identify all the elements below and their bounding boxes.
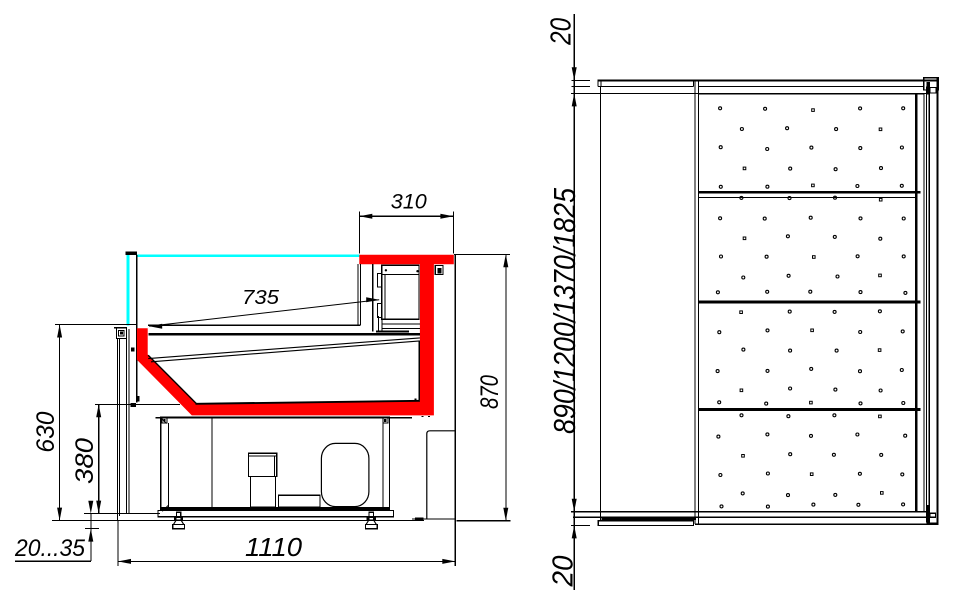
svg-text:735: 735 bbox=[242, 287, 280, 309]
svg-text:20: 20 bbox=[545, 18, 577, 46]
svg-text:20: 20 bbox=[547, 556, 579, 588]
svg-text:890/1200/1370/1825: 890/1200/1370/1825 bbox=[547, 187, 582, 434]
svg-text:380: 380 bbox=[71, 438, 99, 484]
svg-text:20...35: 20...35 bbox=[14, 535, 86, 562]
svg-text:1110: 1110 bbox=[245, 532, 303, 562]
svg-text:310: 310 bbox=[391, 191, 427, 214]
svg-text:870: 870 bbox=[476, 375, 504, 409]
svg-text:630: 630 bbox=[32, 412, 60, 453]
